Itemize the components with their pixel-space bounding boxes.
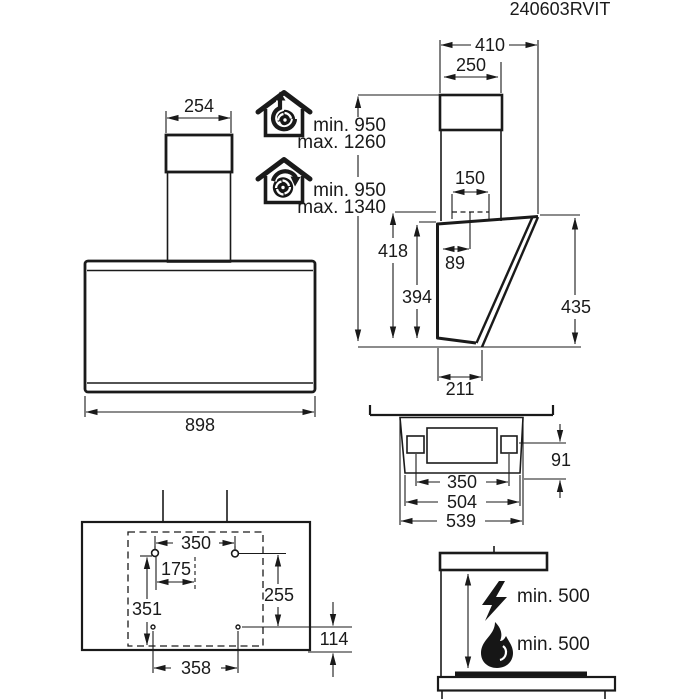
dim-lower-holes-358: 358 bbox=[153, 631, 238, 678]
dim-label-504: 504 bbox=[447, 492, 477, 512]
dimension-drawing-page: 240603RVIT 254 898 bbox=[0, 0, 700, 700]
dim-label-250: 250 bbox=[456, 55, 486, 75]
dim-label-435: 435 bbox=[561, 297, 591, 317]
electric-clearance-label: min. 500 bbox=[517, 586, 590, 607]
lower-hole-left bbox=[151, 625, 155, 629]
dim-duct-offset-89: 89 bbox=[443, 249, 469, 273]
plan-view: 350 504 539 91 bbox=[370, 405, 571, 531]
dim-chimney-width: 254 bbox=[166, 96, 231, 133]
dim-height-394: 394 bbox=[402, 222, 436, 338]
side-hood-body bbox=[438, 217, 539, 348]
plan-bracket-left bbox=[407, 436, 424, 453]
dim-half-spacing-175: 175 bbox=[156, 557, 195, 590]
lightning-bolt-icon bbox=[482, 581, 507, 621]
ducted-max-height: max. 1260 bbox=[297, 132, 386, 153]
dim-label-plan-350: 350 bbox=[447, 472, 477, 492]
side-chimney bbox=[440, 95, 502, 221]
dim-bottom-depth-211: 211 bbox=[438, 348, 482, 399]
dim-label-150: 150 bbox=[455, 168, 485, 188]
cooker-hood-dimension-drawing: 240603RVIT 254 898 bbox=[0, 0, 700, 700]
side-view: 410 250 150 89 418 394 bbox=[378, 35, 591, 399]
dim-label-539: 539 bbox=[446, 511, 476, 531]
plan-duct-box bbox=[427, 428, 497, 463]
dim-upper-holes-350: 350 bbox=[155, 533, 235, 553]
plan-wall-line bbox=[370, 405, 553, 415]
dim-label-394: 394 bbox=[402, 287, 432, 307]
wall-template-view: 350 175 351 255 114 bbox=[82, 490, 352, 678]
dim-label-114: 114 bbox=[320, 629, 349, 649]
dim-label-175: 175 bbox=[161, 559, 191, 579]
clearance-hood-bottom bbox=[440, 553, 547, 570]
dim-label-351: 351 bbox=[132, 599, 162, 619]
gas-clearance-label: min. 500 bbox=[517, 634, 590, 655]
clearance-counter bbox=[438, 677, 615, 691]
flame-icon bbox=[481, 622, 513, 668]
dim-bottom-offset-114: 114 bbox=[242, 602, 352, 677]
dim-body-width: 898 bbox=[85, 396, 315, 435]
dim-duct-150: 150 bbox=[452, 168, 489, 249]
plan-bracket-right bbox=[501, 436, 517, 453]
dim-label-410: 410 bbox=[475, 35, 505, 55]
dim-label-358: 358 bbox=[181, 658, 211, 678]
dim-height-418: 418 bbox=[378, 212, 436, 338]
dim-label-255: 255 bbox=[264, 585, 294, 605]
recirc-max-height: max. 1340 bbox=[297, 197, 386, 218]
dim-chimney-depth-250: 250 bbox=[444, 55, 501, 93]
dim-label-91: 91 bbox=[551, 450, 571, 470]
front-view: 254 898 bbox=[85, 96, 315, 435]
front-body bbox=[85, 261, 315, 392]
ducted-mode: min. 950 max. 1260 bbox=[258, 92, 386, 154]
dim-label-898: 898 bbox=[185, 415, 215, 435]
dim-label-wall-350: 350 bbox=[181, 533, 211, 553]
house-exhaust-fan-icon bbox=[258, 92, 310, 136]
clearance-diagram: min. 500 min. 500 bbox=[438, 546, 615, 699]
plan-hood-outline bbox=[400, 418, 523, 474]
dim-vertical-351: 351 bbox=[132, 556, 162, 645]
dim-label-211: 211 bbox=[446, 379, 475, 399]
recirculating-mode: min. 950 max. 1340 bbox=[258, 160, 386, 219]
dim-label-254: 254 bbox=[184, 96, 214, 116]
front-chimney bbox=[166, 135, 232, 262]
dim-fixing-offset-91: 91 bbox=[519, 424, 571, 498]
dim-height-435: 435 bbox=[540, 215, 591, 344]
dim-right-vertical-255: 255 bbox=[239, 554, 294, 627]
dim-label-418: 418 bbox=[378, 241, 408, 261]
lower-hole-right bbox=[236, 625, 240, 629]
dim-label-89: 89 bbox=[445, 253, 465, 273]
drawing-title: 240603RVIT bbox=[510, 0, 611, 19]
